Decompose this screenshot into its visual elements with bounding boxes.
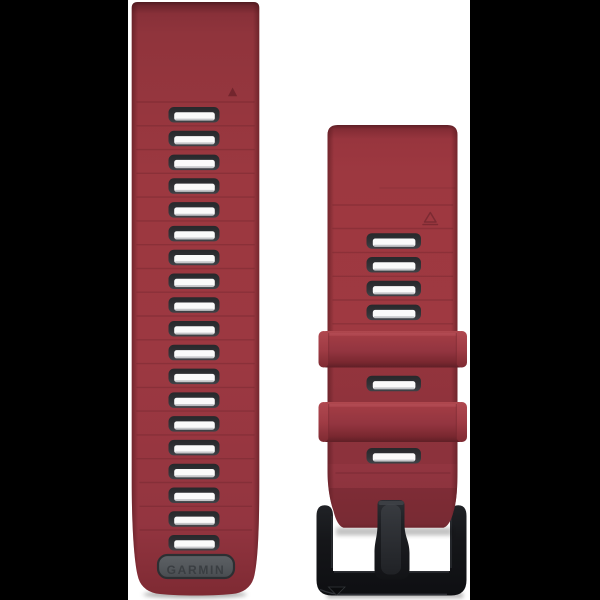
svg-text:GARMIN: GARMIN bbox=[167, 563, 226, 577]
